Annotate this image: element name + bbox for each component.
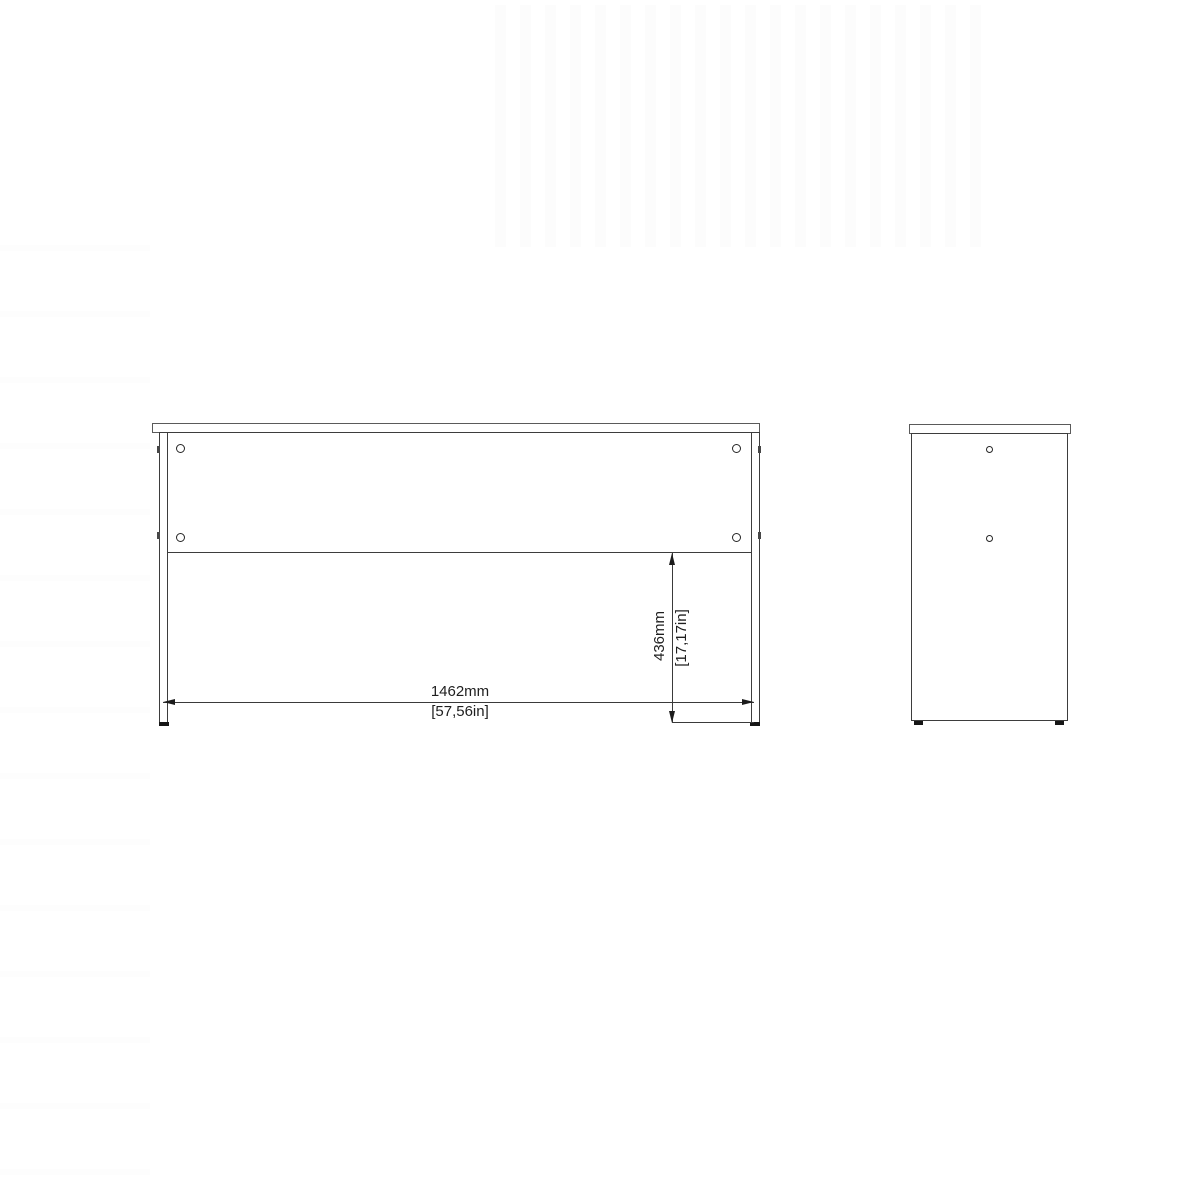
front-hole-top-right <box>732 444 741 453</box>
front-left-leg <box>159 432 168 723</box>
side-hole-top <box>986 446 993 453</box>
side-hole-bottom <box>986 535 993 542</box>
front-hole-bottom-right <box>732 533 741 542</box>
left-leg-edge-fitting-tick-bottom <box>157 532 160 539</box>
front-hole-top-left <box>176 444 185 453</box>
height-arrow-up-icon <box>669 553 675 565</box>
side-left-foot <box>914 721 923 725</box>
floor-extension-line <box>672 722 754 723</box>
width-dimension-label-inches: [57,56in] <box>413 704 507 720</box>
height-dimension-label-inches: [17,17in] <box>674 595 690 681</box>
front-hole-bottom-left <box>176 533 185 542</box>
scan-artifact-stripes-left <box>0 185 150 1175</box>
side-panel-body <box>911 433 1068 721</box>
side-right-foot <box>1055 721 1064 725</box>
width-arrow-right-icon <box>742 699 754 705</box>
right-leg-edge-fitting-tick-bottom <box>758 532 761 539</box>
width-arrow-left-icon <box>163 699 175 705</box>
front-left-foot <box>159 722 169 726</box>
width-dimension-label-mm: 1462mm <box>413 684 507 700</box>
height-dimension-label-mm: 436mm <box>652 593 668 679</box>
right-leg-edge-fitting-tick-top <box>758 446 761 453</box>
front-right-leg <box>751 432 760 723</box>
technical-drawing-page: 1462mm [57,56in] 436mm [17,17in] <box>0 0 1200 1200</box>
scan-artifact-stripes-top <box>495 5 995 247</box>
left-leg-edge-fitting-tick-top <box>157 446 160 453</box>
front-back-rail-panel <box>167 432 752 553</box>
